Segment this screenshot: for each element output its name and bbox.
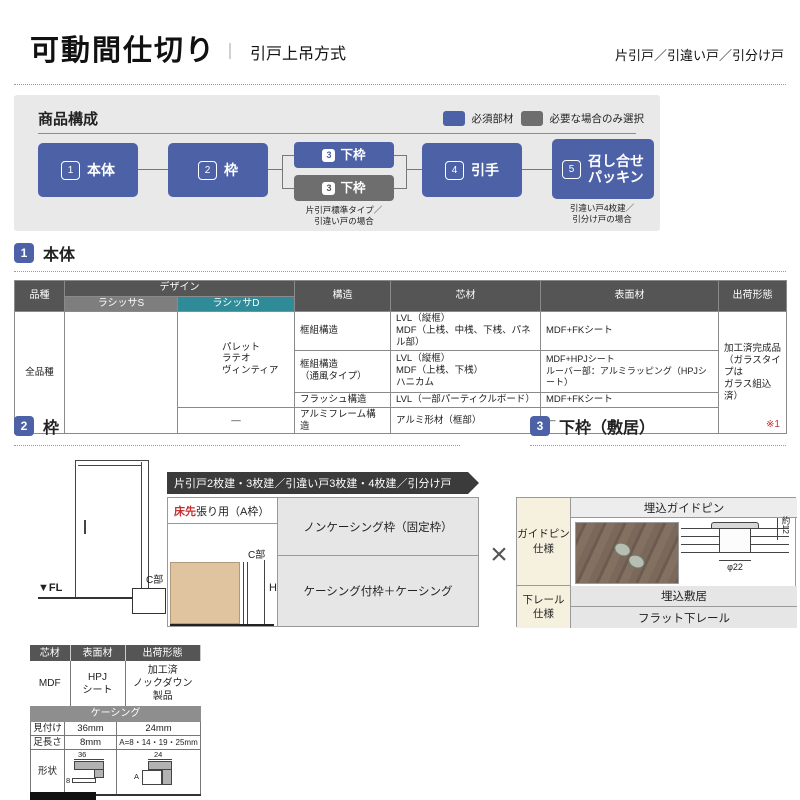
flow-note-packing: 引違い戸4枚建／ 引分け戸の場合	[542, 203, 662, 225]
flow-number-3b: 3	[322, 182, 335, 195]
section-title-sill: 下枠（敷居）	[559, 414, 655, 438]
floor-level-label: ▼FL	[38, 582, 62, 594]
header-divider	[14, 84, 786, 85]
casing-width-24: 24mm	[117, 722, 201, 736]
flow-label-frame: 枠	[224, 162, 238, 178]
shape-dim-36: 36	[78, 750, 86, 759]
col-header-shukka: 出荷形態	[719, 281, 787, 312]
cell-shinzai-4: アルミ形材（框部）	[391, 407, 541, 434]
connector-line	[282, 155, 294, 156]
profile-fill	[162, 769, 172, 785]
col-header-kozo: 構造	[295, 281, 391, 312]
cell-lasissa-d: パレット ラテオ ヴィンティア	[178, 312, 295, 408]
section-divider	[14, 271, 786, 272]
dim-line	[74, 759, 104, 760]
flow-label-sill: 下枠	[340, 148, 365, 162]
casing-shape-24-cell: 24 A	[117, 750, 201, 796]
flow-box-pull: 4 引手	[422, 143, 522, 197]
flow-label-packing: 召し合せ パッキン	[588, 153, 644, 185]
rail-row-header: 下レール 仕様	[517, 586, 571, 628]
legend-optional-label: 必要な場合のみ選択	[550, 111, 645, 126]
h-dim-line	[264, 560, 265, 624]
flow-label-pull: 引手	[471, 162, 499, 178]
cell-lasissa-d-alumi: ―	[178, 407, 295, 434]
section-number-1: 1	[14, 243, 34, 263]
profile-base	[72, 778, 96, 783]
mat-cell-shinzai: MDF	[30, 661, 70, 707]
page-title: 可動間仕切り	[30, 27, 216, 69]
casing-row1-label: 見付け	[31, 722, 65, 736]
connector-line	[138, 169, 168, 170]
flow-number-2: 2	[198, 161, 217, 180]
flow-label-body: 本体	[87, 162, 115, 178]
title-separator: ｜	[222, 38, 238, 62]
guide-pin-section-diagram: φ22 約12	[679, 514, 795, 584]
composition-title: 商品構成	[38, 108, 98, 129]
height-dim-line	[777, 518, 778, 540]
h-dim-label: H	[269, 582, 277, 594]
footer-mark	[30, 792, 96, 800]
door-type-list: 片引戸／引違い戸／引分け戸	[615, 45, 784, 64]
cell-shukka: 加工済完成品 （ガラスタイプは ガラス組込済）	[719, 312, 787, 434]
flow-box-sill-required: 3 下枠	[294, 142, 394, 168]
flow-label-sill-optional: 下枠	[340, 181, 365, 195]
door-handle-mark	[84, 520, 86, 534]
c-part-label-2: C部	[248, 546, 265, 561]
panel-divider	[38, 133, 636, 134]
section-divider	[530, 445, 786, 446]
mat-header-hyomenzai: 表面材	[70, 645, 125, 661]
floor-line-2	[170, 624, 274, 626]
rail-option-flat: フラット下レール	[571, 607, 797, 628]
reference-note: ※1	[766, 419, 780, 430]
cell-shinzai-2: LVL（縦框） MDF（上桟、下桟） ハニカム	[391, 350, 541, 392]
door-inner-line	[78, 465, 141, 466]
section-title-body: 本体	[43, 241, 75, 265]
cell-hyomenzai-3: MDF+FKシート	[541, 392, 719, 407]
col-header-design: デザイン	[65, 281, 295, 297]
pin-shank	[719, 529, 751, 553]
profile-fill	[94, 769, 104, 778]
mat-header-shukka: 出荷形態	[125, 645, 200, 661]
connector-line	[406, 155, 407, 189]
connector-line	[522, 169, 552, 170]
cell-shinzai-3: LVL（一部パーティクルボード）	[391, 392, 541, 407]
shape-dim-24: 24	[154, 750, 162, 759]
page-subtitle: 引戸上吊方式	[250, 40, 346, 64]
legend: 必須部材 必要な場合のみ選択	[443, 111, 645, 126]
col-header-lasissa-s: ラシッサS	[65, 296, 178, 312]
body-spec-table: 品種 デザイン 構造 芯材 表面材 出荷形態 ラシッサS ラシッサD 全品種 パ…	[14, 280, 787, 434]
dia-dim-line	[719, 560, 751, 561]
legend-required-label: 必須部材	[472, 111, 514, 126]
profile-base	[142, 770, 162, 785]
frame-line	[247, 562, 248, 624]
mat-cell-hyomenzai: HPJ シート	[70, 661, 125, 707]
frame-line	[243, 562, 244, 624]
connector-line	[268, 169, 282, 170]
section-title-frame: 枠	[43, 414, 59, 438]
section-frame-header: 2 枠	[14, 414, 59, 438]
flow-number-1: 1	[61, 161, 80, 180]
frame-material-table: 芯材 表面材 出荷形態 MDF HPJ シート 加工済 ノックダウン 製品	[30, 645, 201, 708]
section-sill-header: 3 下枠（敷居）	[530, 414, 655, 438]
casing-profile-24: 24 A	[118, 750, 199, 794]
floor-type-cell: 床先 張り用（A枠）	[168, 498, 278, 524]
connector-line	[282, 188, 294, 189]
pin-cap	[711, 522, 759, 529]
product-composition-panel: 商品構成 必須部材 必要な場合のみ選択 1 本体 2 枠 3 下枠 3 下枠 片…	[14, 95, 660, 231]
rail-option-recessed: 埋込敷居	[571, 586, 797, 607]
floor-type-red: 床先	[174, 503, 196, 519]
shape-dim-a: A	[134, 772, 139, 781]
cell-kozo-3: フラッシュ構造	[295, 392, 391, 407]
mat-cell-shukka: 加工済 ノックダウン 製品	[125, 661, 200, 707]
door-elevation-diagram	[75, 460, 149, 598]
door-inner-line	[141, 462, 142, 596]
guide-pin-photo	[575, 522, 679, 584]
col-header-lasissa-d: ラシッサD	[178, 296, 295, 312]
frame-option-table: 床先 張り用（A枠） C部 H ノンケーシング枠（固定枠） ケーシング付枠＋ケー…	[167, 497, 479, 627]
mat-header-shinzai: 芯材	[30, 645, 70, 661]
cell-kozo-4: アルミフレーム構造	[295, 407, 391, 434]
cell-hyomenzai-2: MDF+HPJシート ルーバー部：アルミラッピング（HPJシート）	[541, 350, 719, 392]
wall-section-fill	[170, 562, 240, 624]
dia-dim-label: φ22	[707, 562, 763, 572]
cell-kozo-1: 框組構造	[295, 312, 391, 351]
casing-row2-label: 足長さ	[31, 736, 65, 750]
casing-profile-36: 36 8	[66, 750, 115, 794]
connector-line	[406, 169, 422, 170]
multiply-symbol: ×	[484, 538, 514, 572]
casing-leg-a: A=8・14・19・25mm	[117, 736, 201, 750]
optional-swatch	[521, 111, 543, 126]
connector-line	[394, 155, 406, 156]
casing-title: ケーシング	[31, 707, 201, 722]
section-number-3: 3	[530, 416, 550, 436]
shape-dim-8: 8	[66, 776, 70, 785]
flow-box-packing: 5 召し合せ パッキン	[552, 139, 654, 199]
flow-number-3: 3	[322, 149, 335, 162]
door-count-banner: 片引戸2枚建・3枚建／引違い戸3枚建・4枚建／引分け戸	[167, 472, 479, 494]
flow-box-frame: 2 枠	[168, 143, 268, 197]
casing-width-36: 36mm	[65, 722, 117, 736]
section-body-header: 1 本体	[14, 241, 75, 265]
flow-box-body: 1 本体	[38, 143, 138, 197]
catalog-page: 可動間仕切り ｜ 引戸上吊方式 片引戸／引違い戸／引分け戸 商品構成 必須部材 …	[0, 0, 800, 800]
cell-lasissa-s	[65, 312, 178, 434]
col-header-hyomenzai: 表面材	[541, 281, 719, 312]
flow-box-sill-optional: 3 下枠	[294, 175, 394, 201]
cell-hyomenzai-1: MDF+FKシート	[541, 312, 719, 351]
col-header-shinzai: 芯材	[391, 281, 541, 312]
required-swatch	[443, 111, 465, 126]
connector-line	[282, 155, 283, 189]
frame-section-diagram: C部 H	[168, 524, 278, 626]
sill-spec-table: ガイドピン 仕様 下レール 仕様 埋込ガイドピン φ22 約12 埋込敷居 フラ…	[516, 497, 796, 627]
section-divider	[14, 445, 460, 446]
guide-pin	[626, 552, 647, 571]
casing-table: ケーシング 見付け 36mm 24mm 足長さ 8mm A=8・14・19・25…	[30, 706, 201, 796]
frame-option-casing: ケーシング付枠＋ケーシング	[278, 556, 478, 626]
flow-number-4: 4	[445, 161, 464, 180]
flow-note-sill: 片引戸標準タイプ／ 引違い戸の場合	[270, 205, 418, 227]
casing-shape-label: 形状	[31, 750, 65, 796]
floor-type-rest: 張り用（A枠）	[196, 503, 269, 519]
cell-shinzai-1: LVL（縦框） MDF（上桟、中桟、下桟、パネル部）	[391, 312, 541, 351]
flow-number-5: 5	[562, 160, 581, 179]
c-detail-box	[132, 588, 166, 614]
frame-option-noncasing: ノンケーシング枠（固定枠）	[278, 498, 478, 556]
connector-line	[394, 188, 406, 189]
guide-pin-row-header: ガイドピン 仕様	[517, 498, 571, 586]
height-dim-label: 約12	[780, 516, 792, 534]
col-header-hinshu: 品種	[15, 281, 65, 312]
casing-leg-8: 8mm	[65, 736, 117, 750]
dim-line	[148, 759, 172, 760]
cell-kozo-2: 框組構造 （通風タイプ）	[295, 350, 391, 392]
casing-shape-36-cell: 36 8	[65, 750, 117, 796]
c-part-label: C部	[146, 571, 163, 586]
section-number-2: 2	[14, 416, 34, 436]
